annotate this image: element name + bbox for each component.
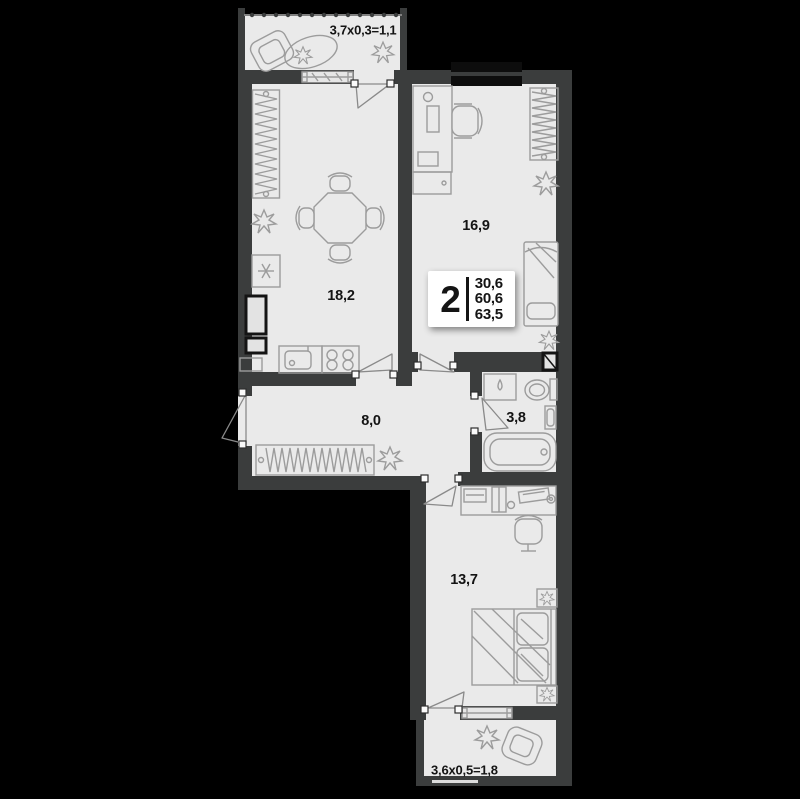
- single-bed-icon: [524, 242, 558, 326]
- balcony-bottom-area-label: 3,6x0,5=1,8: [431, 763, 498, 778]
- fridge-icon: [252, 255, 280, 287]
- kitchen-balcony-window: [302, 71, 353, 83]
- floor-plan-drawing: [0, 0, 800, 799]
- double-bed-icon: [472, 609, 556, 685]
- bedroom-balcony-window: [462, 707, 512, 719]
- hallway-area-label: 8,0: [361, 413, 381, 429]
- area-value: 63,5: [475, 307, 503, 323]
- info-divider: [466, 277, 469, 321]
- duct-shaft: [246, 296, 266, 334]
- bathroom-area-label: 3,8: [506, 410, 526, 426]
- area-value: 60,6: [475, 291, 503, 307]
- floor-plan: 3,7x0,3=1,1 16,9 18,2 8,0 3,8 13,7 3,6x0…: [0, 0, 800, 799]
- area-value: 30,6: [475, 276, 503, 292]
- rooms-count: 2: [440, 281, 460, 318]
- hallway-nook-floor: [412, 372, 470, 386]
- areas-stack: 30,6 60,6 63,5: [475, 276, 503, 323]
- corner-shaft: [543, 353, 557, 370]
- room-area-label: 16,9: [462, 218, 489, 234]
- duct-shaft: [246, 338, 266, 353]
- kitchen-living-area-label: 18,2: [327, 288, 354, 304]
- apartment-info-card: 2 30,6 60,6 63,5: [428, 271, 515, 327]
- bedroom-area-label: 13,7: [450, 572, 477, 588]
- balcony-top-area-label: 3,7x0,3=1,1: [330, 23, 397, 38]
